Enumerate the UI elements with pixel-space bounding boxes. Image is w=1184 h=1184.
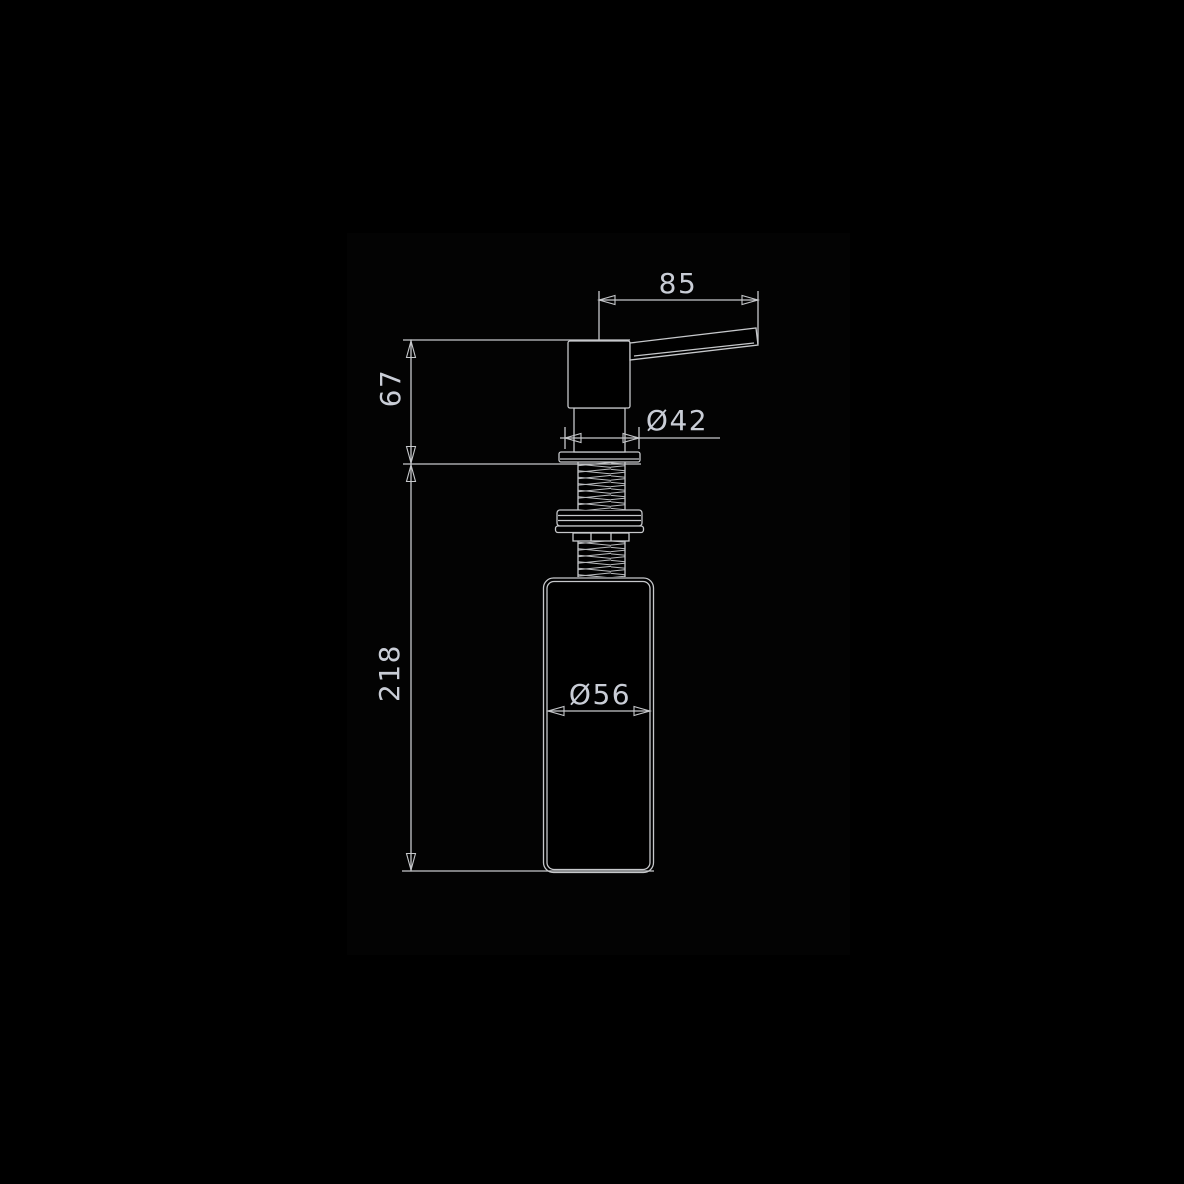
dim-label-head-height: 67 <box>374 369 407 408</box>
dim-label-spout-length: 85 <box>659 267 698 300</box>
dim-label-total-height: 218 <box>373 644 406 702</box>
spout <box>630 328 758 360</box>
mounting-nut <box>556 510 644 533</box>
lower-thread <box>578 541 625 577</box>
pump-neck <box>574 408 625 452</box>
dim-label-flange-diameter: Ø42 <box>646 404 708 437</box>
flange <box>559 452 640 462</box>
pump-head <box>568 341 630 408</box>
upper-thread <box>578 462 625 510</box>
dimension-drawing: 85 67 218 Ø42 Ø56 <box>0 0 1184 1184</box>
collar <box>573 533 629 541</box>
dim-label-bottle-diameter: Ø56 <box>569 678 631 711</box>
bottle <box>544 578 654 873</box>
